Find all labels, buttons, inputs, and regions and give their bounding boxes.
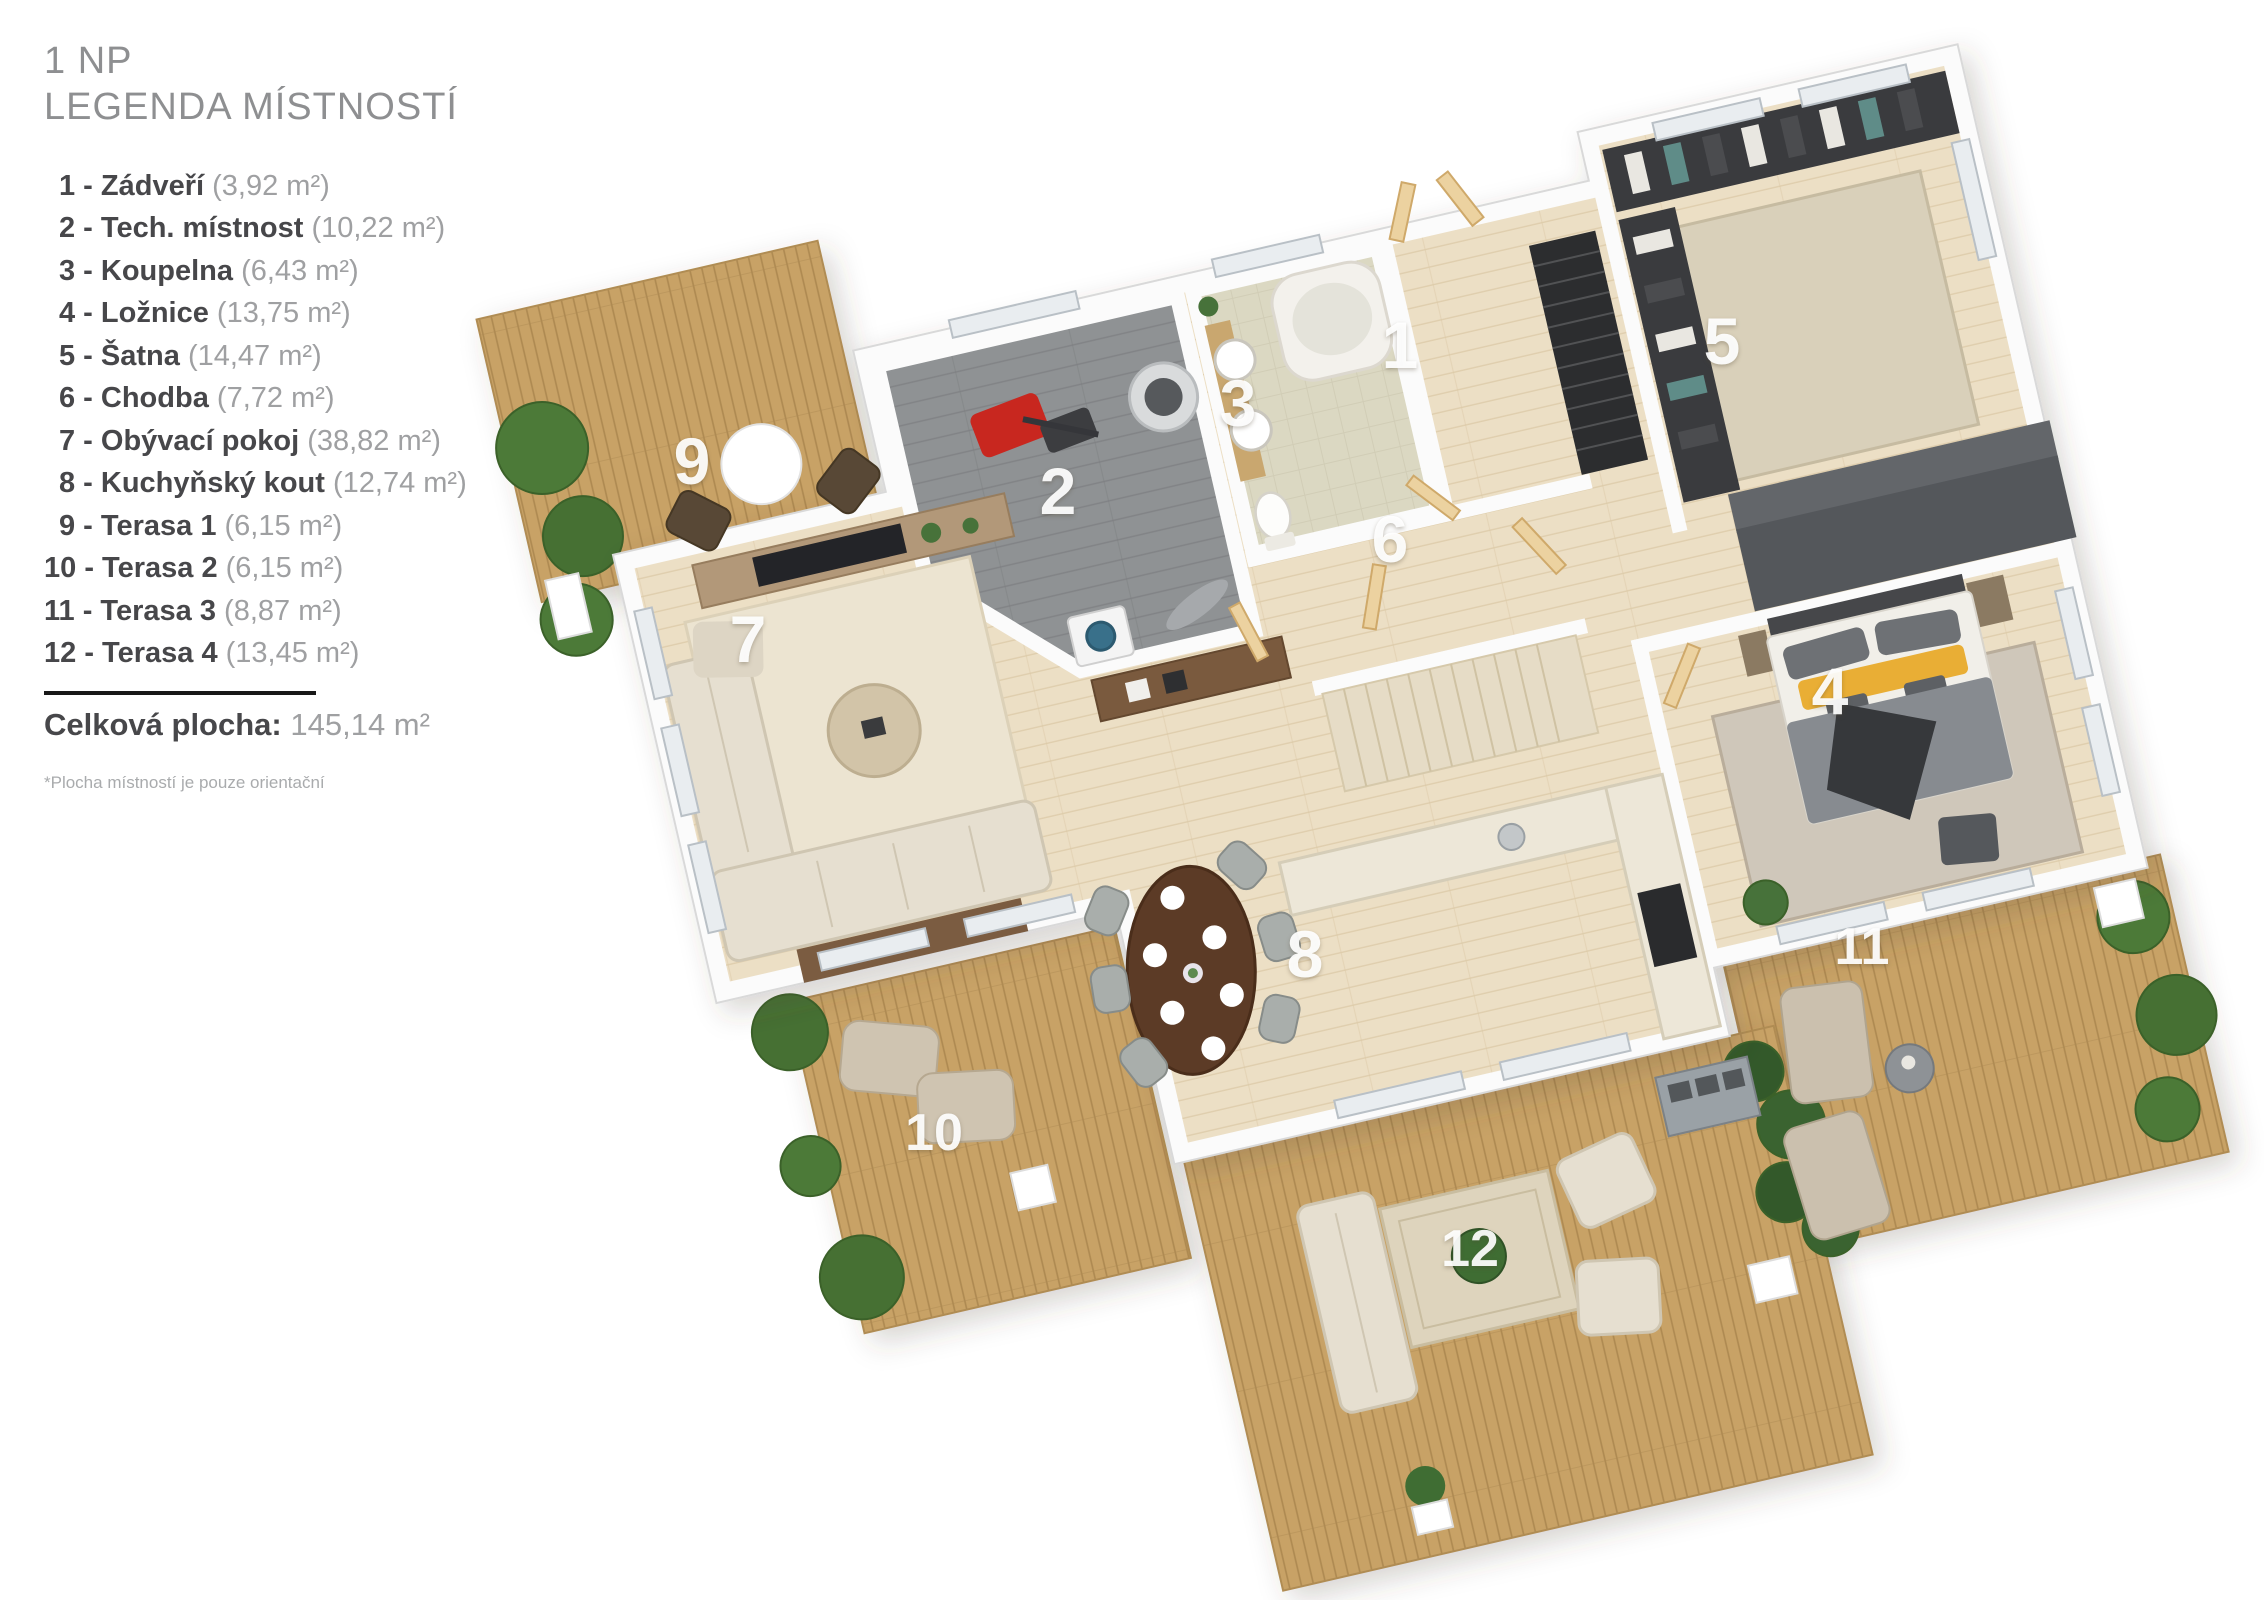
- room-label-6: 6: [1372, 502, 1409, 576]
- room-label-7: 7: [730, 602, 767, 676]
- floorplan-page: 1 NP LEGENDA MÍSTNOSTÍ 1 - Zádveří (3,92…: [0, 0, 2264, 1600]
- room-label-1: 1: [1382, 308, 1419, 382]
- room-label-9: 9: [674, 424, 711, 498]
- room-label-5: 5: [1704, 304, 1741, 378]
- room-label-8: 8: [1287, 917, 1324, 991]
- room-label-3: 3: [1220, 366, 1257, 440]
- room-label-11: 11: [1835, 918, 1890, 976]
- room-label-4: 4: [1812, 654, 1849, 728]
- floor-plan-3d: 1 2 3 4 5 6 7 8 9 10 11 12: [0, 0, 2264, 1600]
- side-cube: [1010, 1165, 1056, 1211]
- planter-box: [2094, 879, 2144, 927]
- sun-lounger: [1779, 980, 1875, 1105]
- room-label-12: 12: [1441, 1220, 1499, 1278]
- planter-box: [1748, 1256, 1797, 1302]
- outdoor-armchair: [1576, 1258, 1662, 1336]
- pouf: [1938, 813, 2000, 866]
- room-label-10: 10: [905, 1104, 963, 1162]
- floorplan-rendering: 1 2 3 4 5 6 7 8 9 10 11 12: [466, 0, 2264, 1600]
- room-label-2: 2: [1040, 454, 1077, 528]
